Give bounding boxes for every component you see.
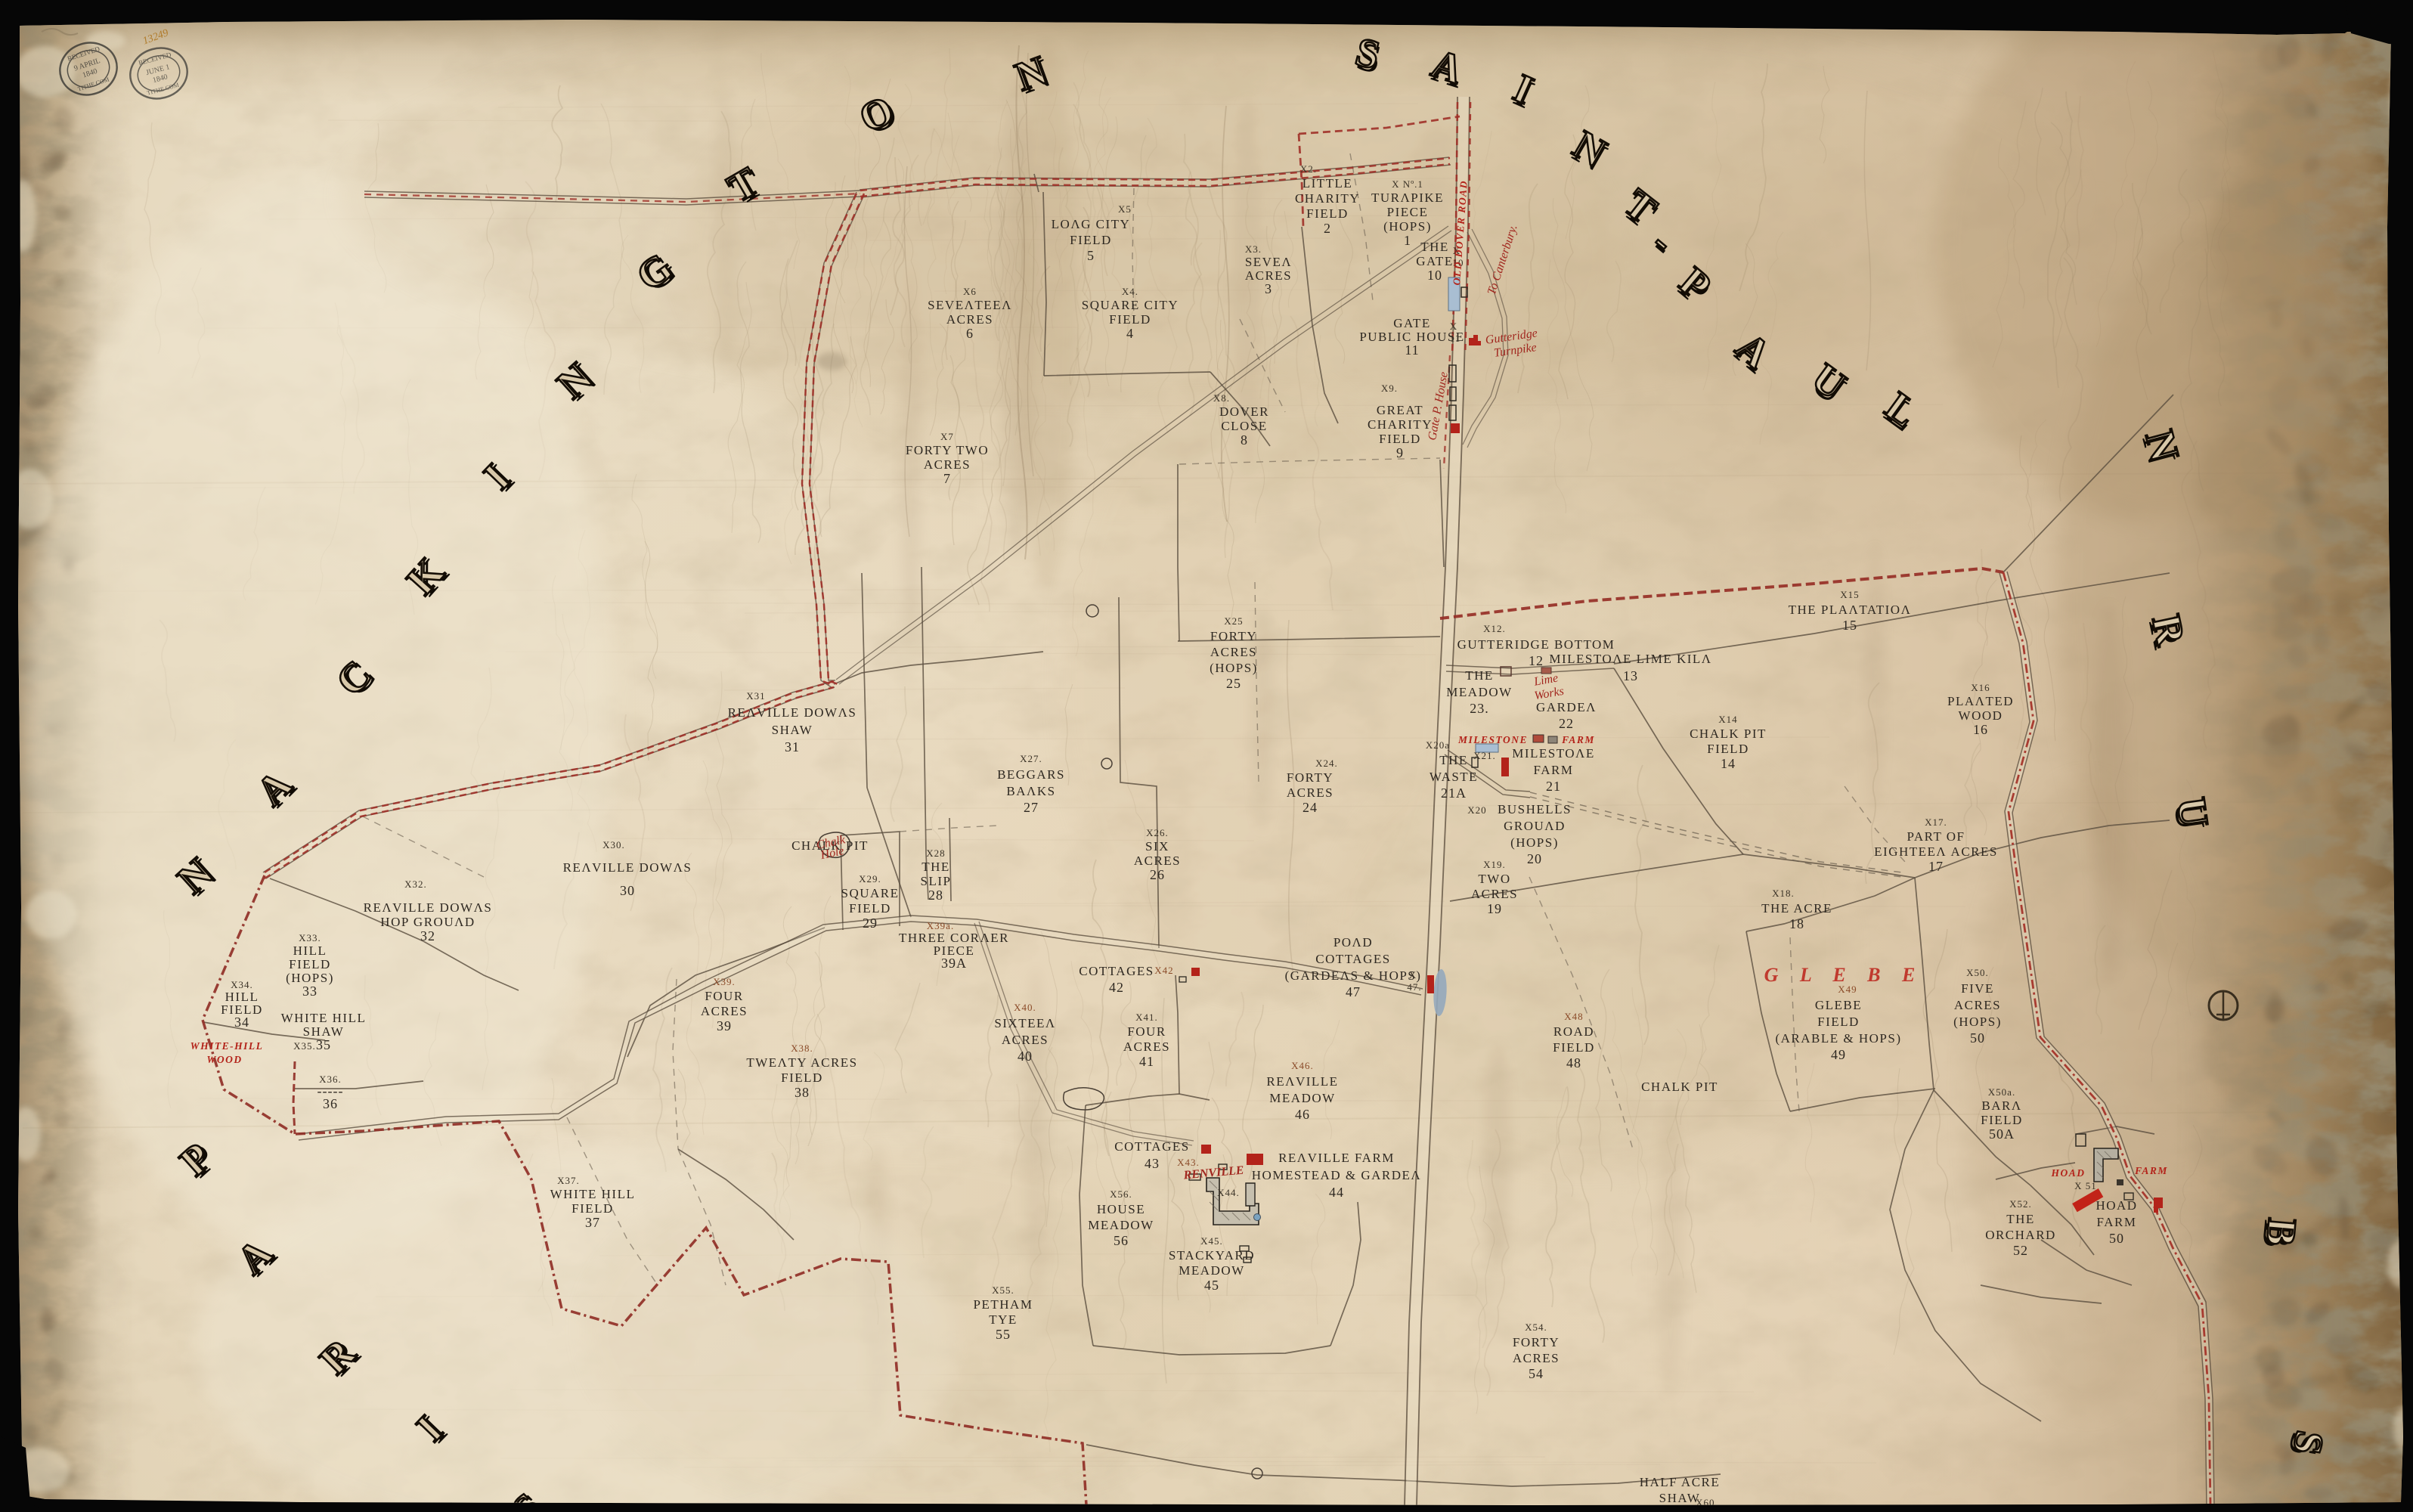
svg-text:SHAW: SHAW	[772, 723, 813, 737]
svg-text:X40.: X40.	[1014, 1002, 1036, 1013]
svg-text:32: 32	[420, 928, 435, 943]
svg-text:22: 22	[1559, 716, 1574, 731]
svg-text:GATE: GATE	[1393, 316, 1430, 330]
svg-text:X39a.: X39a.	[927, 920, 954, 931]
svg-text:X Nº.1: X Nº.1	[1392, 178, 1423, 190]
svg-text:34: 34	[234, 1015, 249, 1030]
svg-text:FIELD: FIELD	[1379, 432, 1421, 446]
svg-text:(HOPS): (HOPS)	[1953, 1015, 2002, 1029]
svg-text:X48: X48	[1564, 1011, 1583, 1022]
svg-text:SHAW: SHAW	[1659, 1491, 1701, 1505]
svg-text:SEVEΛ: SEVEΛ	[1245, 255, 1292, 269]
svg-text:BARΛ: BARΛ	[1981, 1098, 2021, 1113]
svg-text:COTTAGES: COTTAGES	[1114, 1139, 1189, 1154]
svg-text:X17.: X17.	[1925, 816, 1947, 828]
svg-text:ACRES: ACRES	[1513, 1351, 1560, 1365]
svg-text:48: 48	[1566, 1055, 1581, 1070]
svg-text:THE: THE	[1465, 668, 1494, 683]
svg-text:FIELD: FIELD	[781, 1070, 823, 1085]
svg-text:43: 43	[1145, 1156, 1160, 1171]
svg-text:X24.: X24.	[1315, 758, 1338, 769]
svg-text:FIELD: FIELD	[849, 901, 891, 916]
svg-text:FARM: FARM	[2097, 1215, 2137, 1229]
svg-text:TYE: TYE	[989, 1312, 1018, 1327]
svg-text:X50.: X50.	[1966, 967, 1989, 978]
svg-text:X32.: X32.	[404, 878, 427, 890]
svg-text:THE: THE	[1420, 240, 1449, 254]
svg-text:X42: X42	[1154, 965, 1173, 976]
svg-text:WASTE: WASTE	[1430, 770, 1478, 784]
svg-text:26: 26	[1150, 867, 1165, 882]
svg-text:X19.: X19.	[1483, 859, 1506, 870]
svg-text:18: 18	[1789, 916, 1804, 931]
svg-text:X31: X31	[746, 690, 765, 702]
svg-text:HILL: HILL	[293, 943, 327, 958]
svg-text:21: 21	[1546, 779, 1561, 794]
svg-text:5: 5	[1087, 248, 1095, 263]
svg-text:X18.: X18.	[1772, 888, 1795, 899]
svg-text:33: 33	[302, 984, 317, 999]
svg-text:54: 54	[1529, 1366, 1544, 1381]
svg-text:B: B	[2257, 1216, 2305, 1247]
svg-text:ORCHARD: ORCHARD	[1985, 1228, 2056, 1242]
svg-text:55: 55	[996, 1327, 1011, 1342]
svg-text:REΛVILLE: REΛVILLE	[1266, 1074, 1338, 1089]
svg-text:X55.: X55.	[992, 1284, 1014, 1296]
svg-text:21A: 21A	[1441, 785, 1467, 801]
svg-text:FIVE: FIVE	[1961, 981, 1994, 996]
svg-text:MEADOW: MEADOW	[1269, 1091, 1335, 1105]
svg-text:(HOPS): (HOPS)	[1210, 661, 1258, 675]
svg-text:X21.: X21.	[1473, 750, 1496, 761]
svg-text:X15: X15	[1840, 589, 1859, 600]
svg-text:FORTY TWO: FORTY TWO	[906, 443, 989, 457]
svg-text:THE: THE	[1439, 753, 1468, 767]
svg-text:HOUSE: HOUSE	[1097, 1202, 1145, 1216]
svg-text:X8.: X8.	[1213, 392, 1230, 404]
svg-text:ACRES: ACRES	[1002, 1033, 1049, 1047]
svg-text:REΛVILLE DOWΛS: REΛVILLE DOWΛS	[563, 860, 692, 875]
svg-text:ROAD: ROAD	[1553, 1024, 1594, 1039]
svg-text:(HOPS): (HOPS)	[1510, 835, 1559, 850]
svg-text:ACRES: ACRES	[701, 1004, 748, 1018]
svg-text:X14: X14	[1718, 714, 1737, 725]
svg-text:(HOPS): (HOPS)	[1383, 219, 1432, 234]
svg-text:LOΛG CITY: LOΛG CITY	[1052, 217, 1131, 231]
svg-text:X43.: X43.	[1177, 1157, 1200, 1168]
svg-text:X38.: X38.	[791, 1043, 813, 1054]
svg-text:GUTTERIDGE BOTTOM: GUTTERIDGE BOTTOM	[1457, 637, 1615, 652]
svg-text:THE ACRE: THE ACRE	[1761, 901, 1832, 916]
svg-text:BAΛKS: BAΛKS	[1006, 784, 1055, 798]
svg-text:MILESTOΛE LIME KILΛ: MILESTOΛE LIME KILΛ	[1549, 652, 1711, 666]
svg-text:1: 1	[1404, 233, 1411, 248]
svg-text:MEADOW: MEADOW	[1446, 685, 1512, 699]
svg-text:WHITE HILL: WHITE HILL	[281, 1011, 367, 1025]
svg-text:X: X	[1409, 969, 1417, 981]
svg-text:50: 50	[1970, 1030, 1985, 1046]
svg-text:X9.: X9.	[1381, 383, 1398, 394]
svg-text:CHALK PIT: CHALK PIT	[1641, 1080, 1718, 1094]
svg-text:FIELD: FIELD	[1070, 233, 1112, 247]
svg-text:15: 15	[1842, 618, 1857, 633]
svg-text:PETHAM: PETHAM	[974, 1297, 1033, 1312]
svg-text:GROUΛD: GROUΛD	[1504, 819, 1566, 833]
svg-text:ACRES: ACRES	[946, 312, 993, 327]
svg-text:MILESTOΛE: MILESTOΛE	[1512, 746, 1595, 761]
svg-text:MEADOW: MEADOW	[1179, 1263, 1244, 1278]
svg-text:SIXTEEΛ: SIXTEEΛ	[994, 1016, 1055, 1030]
svg-text:PART OF: PART OF	[1907, 829, 1965, 844]
svg-text:REΛVILLE FARM: REΛVILLE FARM	[1278, 1151, 1395, 1165]
svg-text:X39.: X39.	[713, 976, 736, 987]
svg-text:8: 8	[1241, 432, 1248, 448]
svg-text:X45.: X45.	[1200, 1235, 1223, 1247]
svg-text:11: 11	[1450, 333, 1461, 344]
svg-text:X5: X5	[1118, 203, 1132, 215]
svg-text:FIELD: FIELD	[1707, 742, 1749, 756]
svg-text:28: 28	[928, 888, 943, 903]
svg-text:36: 36	[323, 1096, 338, 1111]
svg-text:PIECE: PIECE	[1387, 205, 1429, 219]
svg-text:ACRES: ACRES	[1134, 854, 1181, 868]
svg-text:46: 46	[1295, 1107, 1310, 1122]
svg-text:TWO: TWO	[1478, 872, 1510, 886]
svg-text:THE: THE	[2006, 1212, 2035, 1226]
svg-text:U: U	[2168, 795, 2217, 830]
svg-text:30: 30	[620, 883, 635, 898]
svg-text:X37.: X37.	[557, 1175, 580, 1186]
svg-text:HOP GROUΛD: HOP GROUΛD	[380, 915, 475, 929]
svg-text:40: 40	[1018, 1049, 1033, 1064]
svg-text:X28: X28	[926, 847, 945, 859]
svg-text:HOAD: HOAD	[2095, 1198, 2137, 1213]
svg-text:X20a: X20a	[1426, 739, 1450, 751]
svg-text:FARM: FARM	[1534, 763, 1574, 777]
svg-text:HOMESTEAD & GARDEΛ: HOMESTEAD & GARDEΛ	[1252, 1168, 1421, 1182]
svg-text:6: 6	[966, 326, 974, 341]
svg-text:27: 27	[1024, 800, 1039, 815]
svg-text:X46.: X46.	[1291, 1060, 1314, 1071]
svg-text:STACKYARD: STACKYARD	[1169, 1248, 1255, 1263]
svg-text:X25: X25	[1224, 615, 1243, 627]
svg-text:X12.: X12.	[1483, 623, 1506, 634]
svg-text:20: 20	[1527, 851, 1542, 866]
svg-text:X4.: X4.	[1122, 286, 1138, 297]
svg-text:X16: X16	[1971, 682, 1990, 693]
svg-text:50: 50	[2109, 1231, 2124, 1246]
svg-text:X 51: X 51	[2074, 1180, 2097, 1191]
svg-text:SIX: SIX	[1145, 839, 1169, 854]
svg-text:FORTY: FORTY	[1513, 1335, 1560, 1349]
svg-text:X27.: X27.	[1020, 753, 1042, 764]
svg-text:X26.: X26.	[1146, 827, 1169, 838]
svg-text:PLAΛTED: PLAΛTED	[1947, 694, 2014, 708]
svg-text:X44.: X44.	[1217, 1187, 1240, 1198]
svg-text:38: 38	[795, 1085, 810, 1100]
svg-text:FOUR: FOUR	[705, 989, 743, 1003]
svg-text:41: 41	[1139, 1054, 1154, 1069]
svg-text:FORTY: FORTY	[1210, 629, 1257, 643]
svg-text:FIELD: FIELD	[1817, 1015, 1860, 1029]
svg-text:X56.: X56.	[1110, 1188, 1132, 1200]
svg-text:SQUARE: SQUARE	[841, 886, 899, 900]
svg-text:19: 19	[1487, 901, 1502, 916]
svg-text:WOOD: WOOD	[1959, 708, 2003, 723]
svg-text:ACRES: ACRES	[1471, 887, 1518, 901]
svg-text:39A: 39A	[941, 956, 967, 971]
svg-text:37: 37	[585, 1215, 600, 1230]
svg-text:BEGGARS: BEGGARS	[997, 767, 1065, 782]
svg-text:GREAT: GREAT	[1377, 403, 1423, 417]
svg-text:FARM: FARM	[1561, 734, 1595, 745]
svg-text:ACRES: ACRES	[1287, 785, 1333, 800]
svg-text:CHALK PIT: CHALK PIT	[1690, 727, 1767, 741]
svg-text:GLEBE: GLEBE	[1815, 998, 1862, 1012]
svg-text:THE PLAΛTATIOΛ: THE PLAΛTATIOΛ	[1789, 603, 1912, 617]
svg-text:X: X	[1450, 321, 1457, 332]
svg-text:CHARITY: CHARITY	[1368, 417, 1433, 432]
svg-text:(ARABLE & HOPS): (ARABLE & HOPS)	[1775, 1031, 1901, 1046]
svg-text:47: 47	[1346, 984, 1361, 999]
svg-text:GATE: GATE	[1416, 254, 1453, 268]
svg-text:X34.: X34.	[231, 979, 253, 990]
svg-text:FIELD: FIELD	[1553, 1040, 1595, 1055]
svg-text:10: 10	[1427, 268, 1442, 283]
svg-text:COTTAGES: COTTAGES	[1079, 964, 1154, 978]
svg-text:FIELD: FIELD	[289, 957, 331, 971]
svg-text:49: 49	[1831, 1047, 1846, 1062]
svg-text:FARM: FARM	[2134, 1165, 2168, 1176]
svg-text:TWEΛTY ACRES: TWEΛTY ACRES	[746, 1055, 857, 1070]
svg-text:4: 4	[1126, 326, 1134, 341]
svg-text:ACRES: ACRES	[1210, 645, 1257, 659]
svg-text:CHARITY: CHARITY	[1295, 191, 1360, 206]
svg-text:X41.: X41.	[1135, 1012, 1158, 1023]
svg-text:X35.: X35.	[293, 1040, 316, 1052]
svg-text:X6: X6	[963, 286, 977, 297]
svg-text:12: 12	[1529, 653, 1544, 668]
svg-text:16: 16	[1973, 722, 1988, 737]
svg-text:HALF ACRE: HALF ACRE	[1640, 1475, 1721, 1489]
svg-text:X33.: X33.	[299, 932, 321, 943]
svg-text:HOAD: HOAD	[2050, 1167, 2085, 1179]
svg-text:FIELD: FIELD	[1306, 206, 1349, 221]
svg-text:DOVER: DOVER	[1219, 404, 1269, 419]
svg-text:FIELD: FIELD	[1981, 1113, 2023, 1127]
svg-text:50A: 50A	[1989, 1126, 2015, 1142]
svg-text:45: 45	[1204, 1278, 1219, 1293]
svg-text:44: 44	[1329, 1185, 1344, 1200]
svg-text:14: 14	[1721, 756, 1736, 771]
svg-text:52: 52	[2013, 1243, 2028, 1258]
svg-text:EIGHTEEΛ ACRES: EIGHTEEΛ ACRES	[1874, 844, 1998, 859]
svg-text:(GARDEΛS & HOPS): (GARDEΛS & HOPS)	[1285, 968, 1422, 983]
svg-text:2: 2	[1324, 221, 1331, 236]
svg-text:WHITE-HILL: WHITE-HILL	[190, 1040, 264, 1052]
svg-text:FOUR: FOUR	[1127, 1024, 1166, 1039]
svg-text:G L E B E: G L E B E	[1764, 964, 1924, 986]
svg-text:29: 29	[863, 916, 878, 931]
svg-text:GARDEΛ: GARDEΛ	[1536, 700, 1597, 714]
svg-text:35: 35	[316, 1037, 331, 1052]
svg-text:WOOD: WOOD	[206, 1054, 242, 1065]
svg-text:COTTAGES: COTTAGES	[1315, 952, 1390, 966]
svg-text:11: 11	[1405, 342, 1419, 358]
svg-text:X30.: X30.	[602, 839, 625, 850]
svg-text:SLIP: SLIP	[921, 874, 952, 888]
svg-text:MILESTONE: MILESTONE	[1457, 734, 1528, 745]
svg-text:13: 13	[1623, 668, 1638, 683]
svg-text:X54.: X54.	[1525, 1321, 1547, 1333]
svg-text:7: 7	[943, 471, 951, 486]
svg-text:ACRES: ACRES	[1954, 998, 2001, 1012]
svg-text:THE: THE	[922, 860, 950, 874]
svg-text:X3.: X3.	[1245, 243, 1262, 255]
svg-text:X29.: X29.	[859, 873, 881, 885]
svg-text:SQUARE CITY: SQUARE CITY	[1082, 298, 1179, 312]
svg-text:42: 42	[1109, 980, 1124, 995]
svg-text:X50a.: X50a.	[1988, 1086, 2015, 1098]
svg-text:47.: 47.	[1407, 981, 1421, 993]
svg-text:3: 3	[1265, 281, 1272, 296]
svg-text:REΛVILLE DOWΛS: REΛVILLE DOWΛS	[728, 705, 857, 720]
svg-text:9: 9	[1396, 445, 1404, 460]
svg-text:POΛD: POΛD	[1333, 935, 1373, 950]
svg-text:MEADOW: MEADOW	[1088, 1218, 1154, 1232]
svg-text:CLOSE: CLOSE	[1221, 419, 1267, 433]
svg-text:X52.: X52.	[2009, 1198, 2032, 1210]
svg-text:SEVEΛTEEΛ: SEVEΛTEEΛ	[928, 298, 1012, 312]
svg-text:56: 56	[1114, 1233, 1129, 1248]
svg-text:31: 31	[785, 739, 800, 754]
svg-text:FORTY: FORTY	[1287, 770, 1333, 785]
svg-text:ACRES: ACRES	[1123, 1039, 1170, 1054]
svg-text:24: 24	[1303, 800, 1318, 815]
svg-text:WHITE HILL: WHITE HILL	[550, 1187, 636, 1201]
svg-text:BUSHELLS: BUSHELLS	[1498, 802, 1572, 816]
svg-text:X20: X20	[1467, 804, 1486, 816]
svg-text:X2.: X2.	[1300, 163, 1317, 175]
svg-text:REΛVILLE DOWΛS: REΛVILLE DOWΛS	[364, 900, 493, 915]
svg-text:17: 17	[1928, 859, 1944, 874]
svg-text:23.: 23.	[1470, 701, 1489, 716]
svg-text:39: 39	[717, 1018, 732, 1033]
svg-text:X7: X7	[940, 431, 954, 442]
svg-text:ACRES: ACRES	[924, 457, 971, 472]
svg-text:LITTLE: LITTLE	[1303, 176, 1353, 191]
svg-text:FIELD: FIELD	[571, 1201, 614, 1216]
svg-text:FIELD: FIELD	[1109, 312, 1151, 327]
svg-text:TURΛPIKE: TURΛPIKE	[1371, 191, 1444, 205]
svg-text:25: 25	[1226, 676, 1241, 691]
